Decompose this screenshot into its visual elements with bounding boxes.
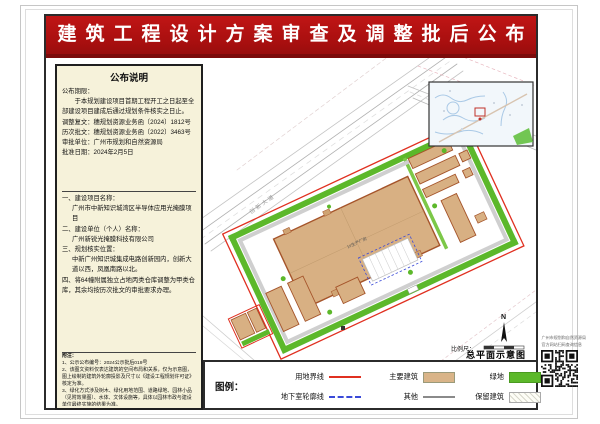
doc-line: 批准日期：2024年2月5日 bbox=[62, 148, 196, 158]
qr-block: 广州市规划和自然资源局 官方网站扫码查询信息 bbox=[540, 335, 579, 387]
site-plan-map: 创新大道 1#生产厂房 bbox=[203, 58, 536, 360]
legend-box: 图例： 用地界线 主要建筑 绿地 地下室轮廓线 其他 bbox=[203, 360, 538, 410]
north-arrow: N bbox=[501, 314, 507, 342]
legend-item-greenery: 绿地 bbox=[457, 369, 541, 385]
project-line: 三、规划核实位置： bbox=[62, 245, 196, 255]
qr-caption-line2: 官方网站扫码查询信息 bbox=[542, 342, 578, 347]
publish-notes-section: 公布说明 公布期限： 于本规划建设项目首期工程开工之日起至全部建设项目建成后通过… bbox=[62, 69, 196, 191]
period-label: 公布期限： bbox=[62, 87, 196, 97]
legend-item-site-boundary: 用地界线 bbox=[261, 369, 361, 385]
legend-grid: 用地界线 主要建筑 绿地 地下室轮廓线 其他 保留建筑 bbox=[261, 369, 541, 405]
qr-code bbox=[541, 350, 578, 387]
footnotes-section: 附注： 1、公示公布编号：2024公示批后019号 2、该图文资料仅表达建筑的空… bbox=[62, 352, 196, 406]
project-line: 广州市中新知识城湾区半导体应用光掩膜项目 bbox=[62, 204, 196, 224]
doc-line: 调整复文：穗规划资源业务函〔2024〕1812号 bbox=[62, 118, 196, 128]
legend-heading: 图例： bbox=[215, 379, 244, 393]
legend-item-retained-building: 保留建筑 bbox=[457, 389, 541, 405]
project-line: 广州新锐光掩膜科技有限公司 bbox=[62, 235, 196, 245]
note-line: 2、该图文资料仅表达建筑的空间布局和关系，仅为示意图，图上绘制的建筑外轮廓投影及… bbox=[62, 368, 196, 389]
notes-heading: 附注： bbox=[62, 354, 196, 361]
note-line: 3、绿化方式涉及树木、绿化用地范围、道路绿地、园林小品（见附效果图）、水体、文体… bbox=[62, 389, 196, 406]
gray-line-swatch bbox=[423, 396, 455, 398]
project-line: 一、建设项目名称： bbox=[62, 194, 196, 204]
project-info-section: 一、建设项目名称： 广州市中新知识城湾区半导体应用光掩膜项目 二、建设单位（个人… bbox=[62, 191, 196, 352]
project-line: 二、建设单位（个人）名称： bbox=[62, 225, 196, 235]
location-inset-map bbox=[429, 82, 533, 146]
announcement-poster: 建筑工程设计方案审查及调整批后公布 公布说明 公布期限： 于本规划建设项目首期工… bbox=[0, 0, 600, 424]
announcement-panel: 公布说明 公布期限： 于本规划建设项目首期工程开工之日起至全部建设项目建成后通过… bbox=[55, 64, 203, 410]
qr-caption-line1: 广州市规划和自然资源局 bbox=[542, 335, 578, 340]
doc-line: 历次批文：穗规划资源业务函〔2022〕3463号 bbox=[62, 128, 196, 138]
east-small-building bbox=[475, 212, 487, 223]
blue-dashed-swatch bbox=[329, 396, 361, 398]
map-marker bbox=[341, 326, 345, 330]
project-line: 四、将64幢附属独立占地丙类仓库调整为甲类仓库，其余均按历次批文的审批要求办理。 bbox=[62, 276, 196, 296]
panel-heading: 公布说明 bbox=[62, 70, 196, 84]
title-banner: 建筑工程设计方案审查及调整批后公布 bbox=[46, 16, 536, 58]
green-box-swatch bbox=[509, 372, 541, 383]
project-line: 中新广州知识城集成电路创新园内，创新大道以西，凤凰南路以北。 bbox=[62, 255, 196, 275]
period-text: 于本规划建设项目首期工程开工之日起至全部建设项目建成后通过规划条件核实之日止。 bbox=[62, 97, 196, 117]
map-caption: 总平面示意图 bbox=[466, 349, 526, 360]
page-title: 建筑工程设计方案审查及调整批后公布 bbox=[46, 16, 536, 53]
svg-text:N: N bbox=[501, 314, 506, 321]
legend-item-other: 其他 bbox=[363, 389, 455, 405]
legend-item-basement-outline: 地下室轮廓线 bbox=[261, 389, 361, 405]
hatched-box-swatch bbox=[509, 392, 541, 403]
legend-item-main-building: 主要建筑 bbox=[363, 369, 455, 385]
tan-box-swatch bbox=[423, 372, 455, 383]
east-building bbox=[441, 193, 476, 242]
doc-line: 审批单位：广州市规划和自然资源局 bbox=[62, 138, 196, 148]
note-line: 1、公示公布编号：2024公示批后019号 bbox=[62, 361, 196, 368]
red-line-swatch bbox=[329, 376, 361, 378]
